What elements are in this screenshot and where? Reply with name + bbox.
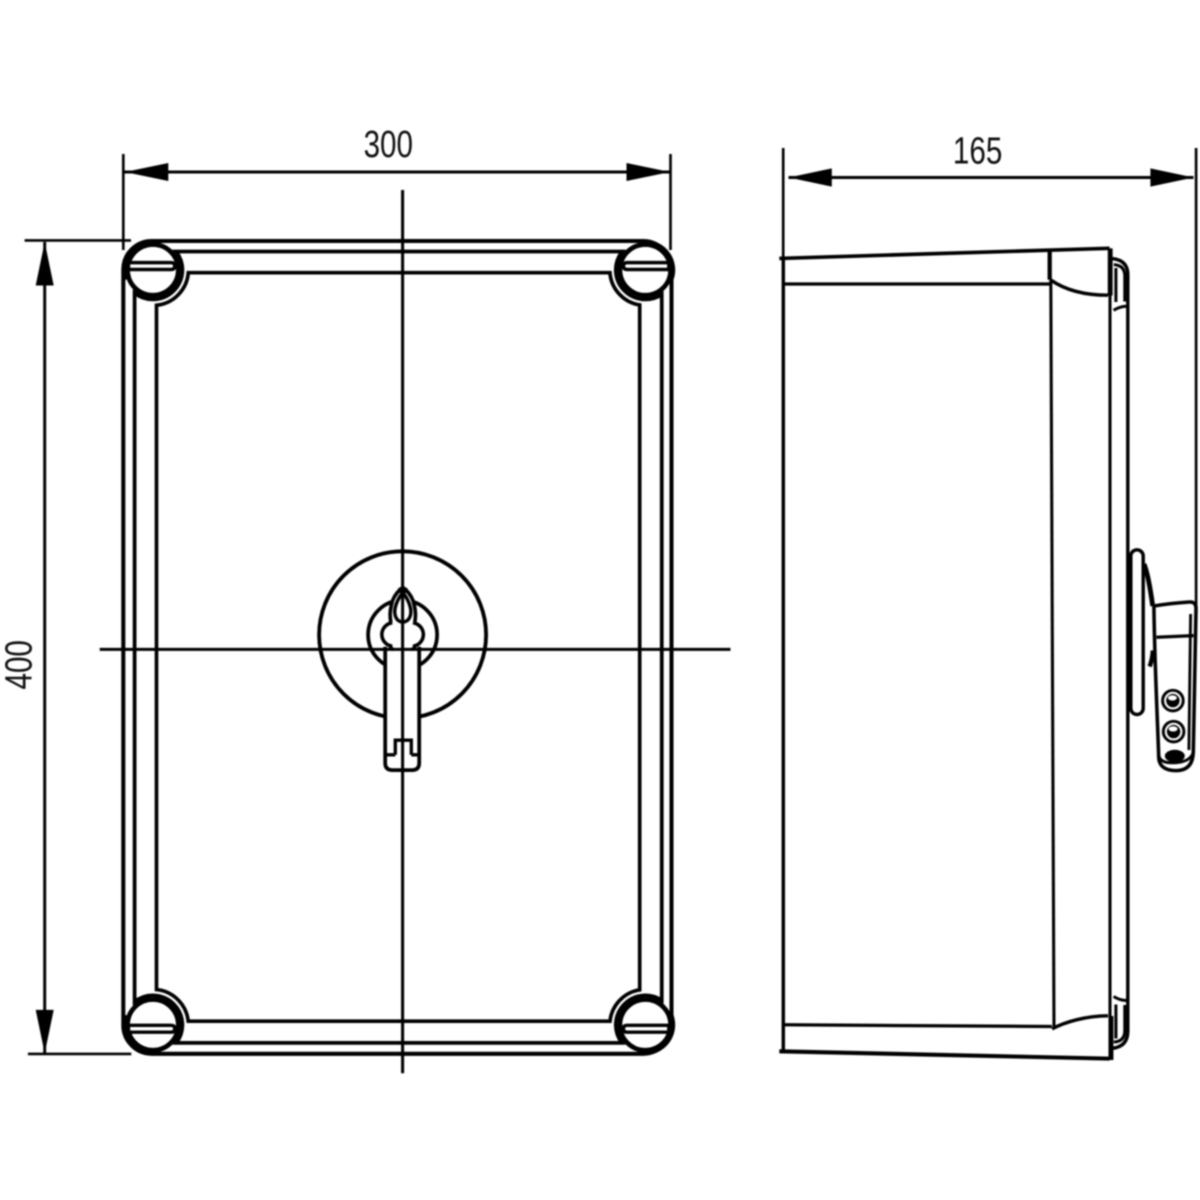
- svg-text:165: 165: [953, 130, 1002, 172]
- svg-text:400: 400: [0, 640, 40, 689]
- svg-text:300: 300: [364, 124, 413, 166]
